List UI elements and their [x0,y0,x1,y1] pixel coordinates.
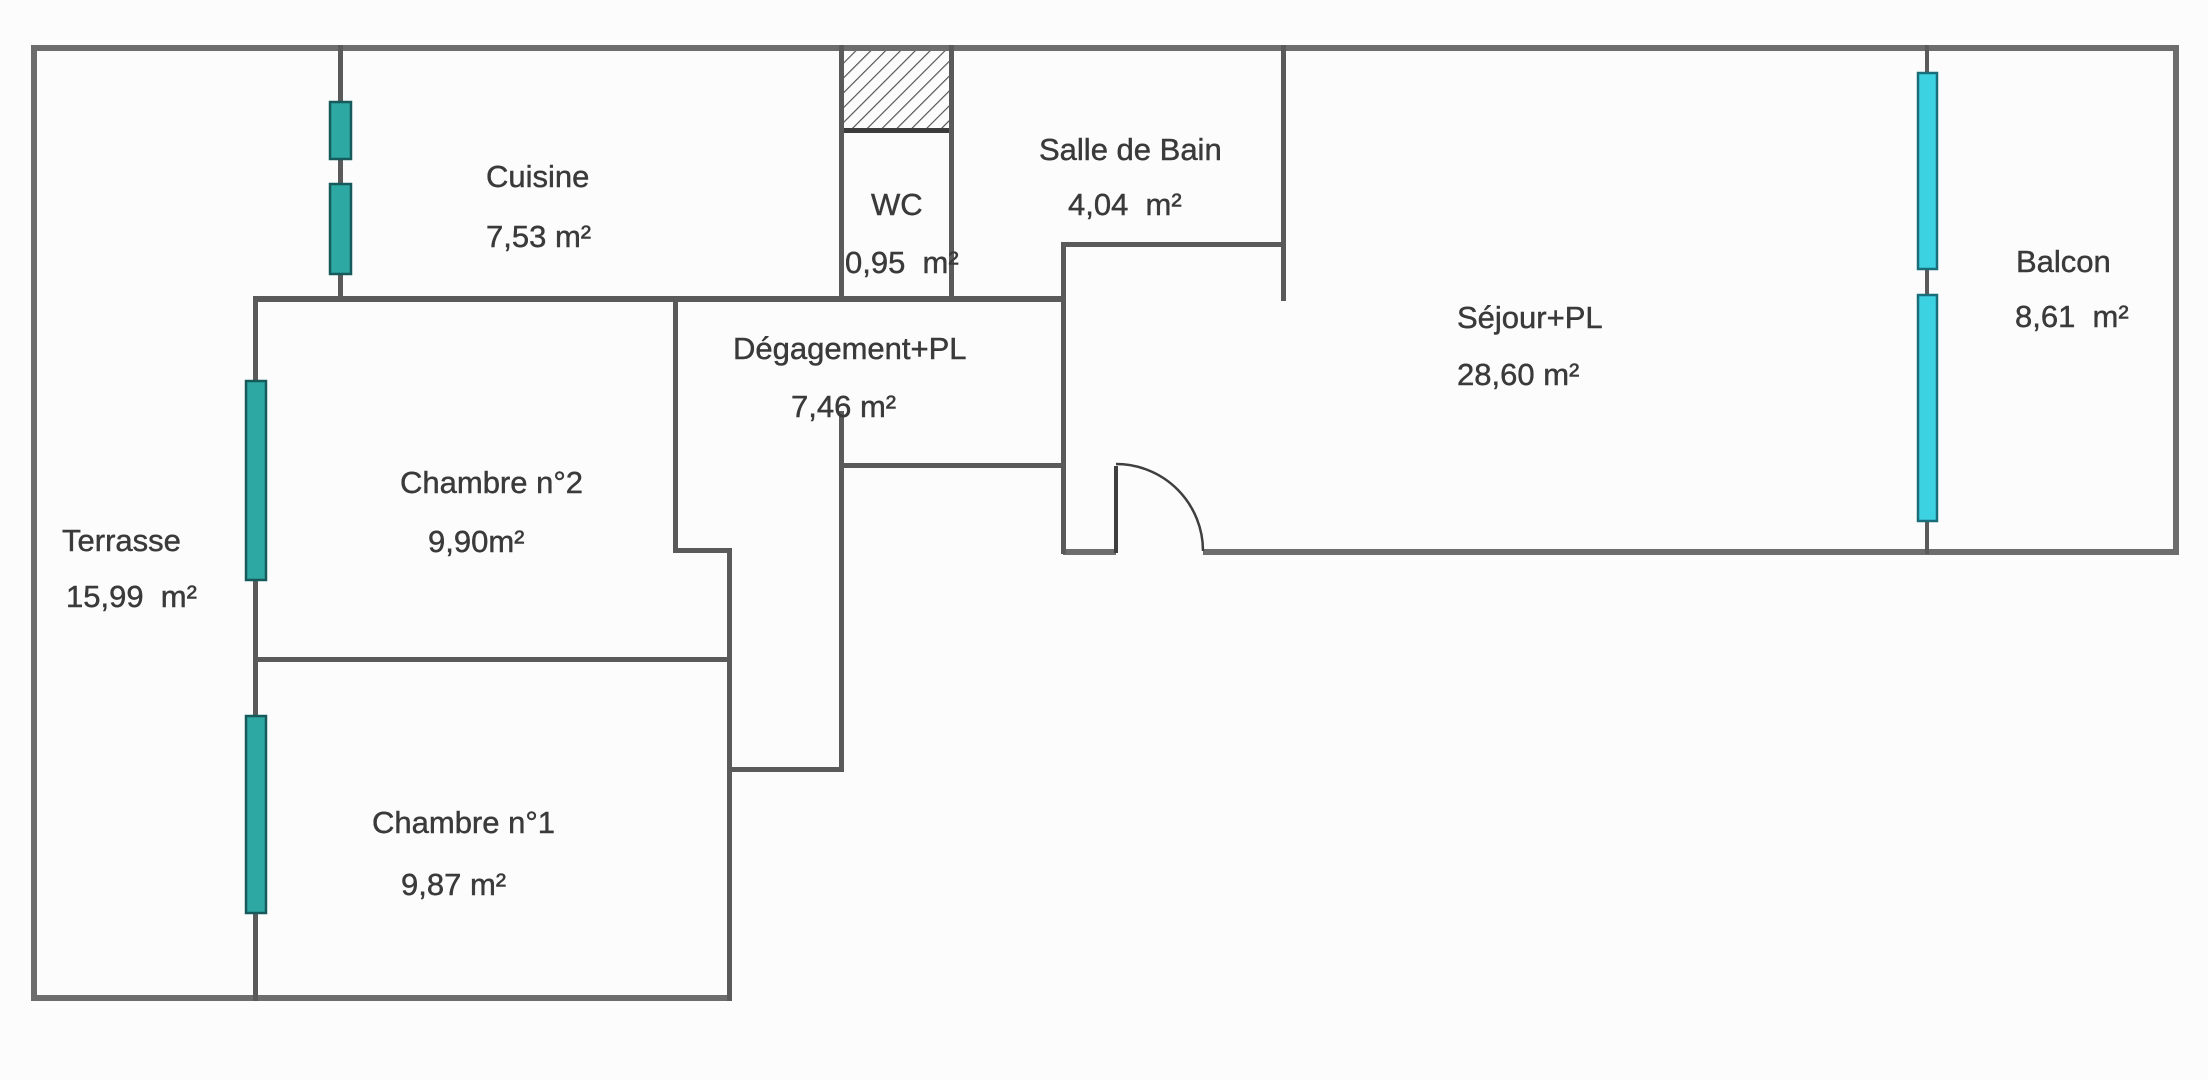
svg-text:15,99 m²: 15,99 m² [66,579,197,614]
svg-text:9,90m²: 9,90m² [428,524,524,559]
svg-text:Chambre n°1: Chambre n°1 [372,805,555,840]
svg-text:Dégagement+PL: Dégagement+PL [733,331,967,366]
svg-text:8,61 m²: 8,61 m² [2015,299,2129,334]
svg-text:4,04 m²: 4,04 m² [1068,187,1182,222]
svg-text:7,53 m²: 7,53 m² [486,219,591,254]
svg-text:Séjour+PL: Séjour+PL [1457,300,1603,335]
svg-text:Salle de Bain: Salle de Bain [1039,132,1222,167]
svg-text:9,87 m²: 9,87 m² [401,867,506,902]
svg-text:Balcon: Balcon [2016,244,2111,279]
svg-text:Terrasse: Terrasse [62,523,181,558]
svg-text:WC: WC [871,187,923,222]
svg-text:7,46 m²: 7,46 m² [791,389,896,424]
svg-text:Cuisine: Cuisine [486,159,589,194]
svg-text:Chambre n°2: Chambre n°2 [400,465,583,500]
svg-text:28,60 m²: 28,60 m² [1457,357,1579,392]
svg-text:0,95 m²: 0,95 m² [845,245,959,280]
